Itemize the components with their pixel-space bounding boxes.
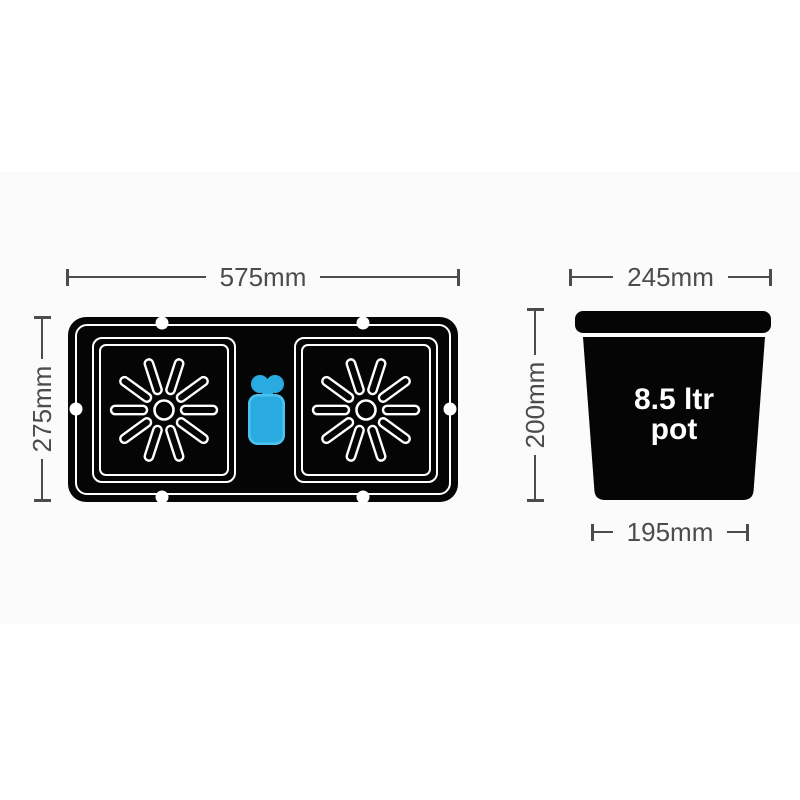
tray-dot	[70, 403, 83, 416]
starburst-icon	[104, 350, 224, 470]
pot-height-label: 200mm	[522, 362, 548, 449]
valve-float-right	[266, 375, 284, 393]
pot-rim	[575, 311, 771, 333]
pot-position-right	[294, 337, 438, 483]
dimension-tick	[34, 499, 51, 502]
pot-top-width-dimension: 245mm	[569, 261, 772, 293]
tray-dot	[357, 491, 370, 504]
dimension-label-gap: 275mm	[33, 359, 51, 459]
dimension-tick	[527, 499, 544, 502]
pot-volume-label-line2: pot	[651, 413, 698, 446]
dimension-line	[594, 531, 613, 534]
starburst-icon	[306, 350, 426, 470]
pot-volume-label-line1: 8.5 ltr	[634, 383, 714, 416]
tray-dot	[444, 403, 457, 416]
tray-dot	[357, 317, 370, 330]
product-dimension-diagram: 575mm 275mm	[0, 0, 800, 800]
tray-dot	[156, 491, 169, 504]
dimension-line	[534, 311, 537, 355]
dimension-label-gap: 200mm	[526, 355, 544, 455]
pot-top-width-label: 245mm	[627, 264, 714, 290]
dimension-line	[728, 276, 769, 279]
dimension-tick	[457, 269, 460, 286]
tray-dot	[156, 317, 169, 330]
pot-base-width-label: 195mm	[627, 519, 714, 545]
tray-depth-dimension: 275mm	[33, 316, 51, 502]
pot-height-dimension: 200mm	[526, 308, 544, 502]
dimension-line	[320, 276, 457, 279]
pot-base-width-dimension: 195mm	[591, 516, 749, 548]
dimension-line	[41, 459, 44, 499]
dimension-line	[69, 276, 206, 279]
tray-depth-label: 275mm	[29, 366, 55, 453]
dimension-line	[534, 455, 537, 499]
pot: 8.5 ltr pot	[565, 305, 777, 505]
tray-width-label: 575mm	[220, 264, 307, 290]
tray	[68, 317, 458, 502]
dimension-line	[572, 276, 613, 279]
dimension-tick	[769, 269, 772, 286]
tray-width-dimension: 575mm	[66, 261, 460, 293]
valve-icon	[248, 394, 285, 445]
dimension-line	[727, 531, 746, 534]
pot-position-left	[92, 337, 236, 483]
dimension-line	[41, 319, 44, 359]
dimension-tick	[746, 524, 749, 541]
